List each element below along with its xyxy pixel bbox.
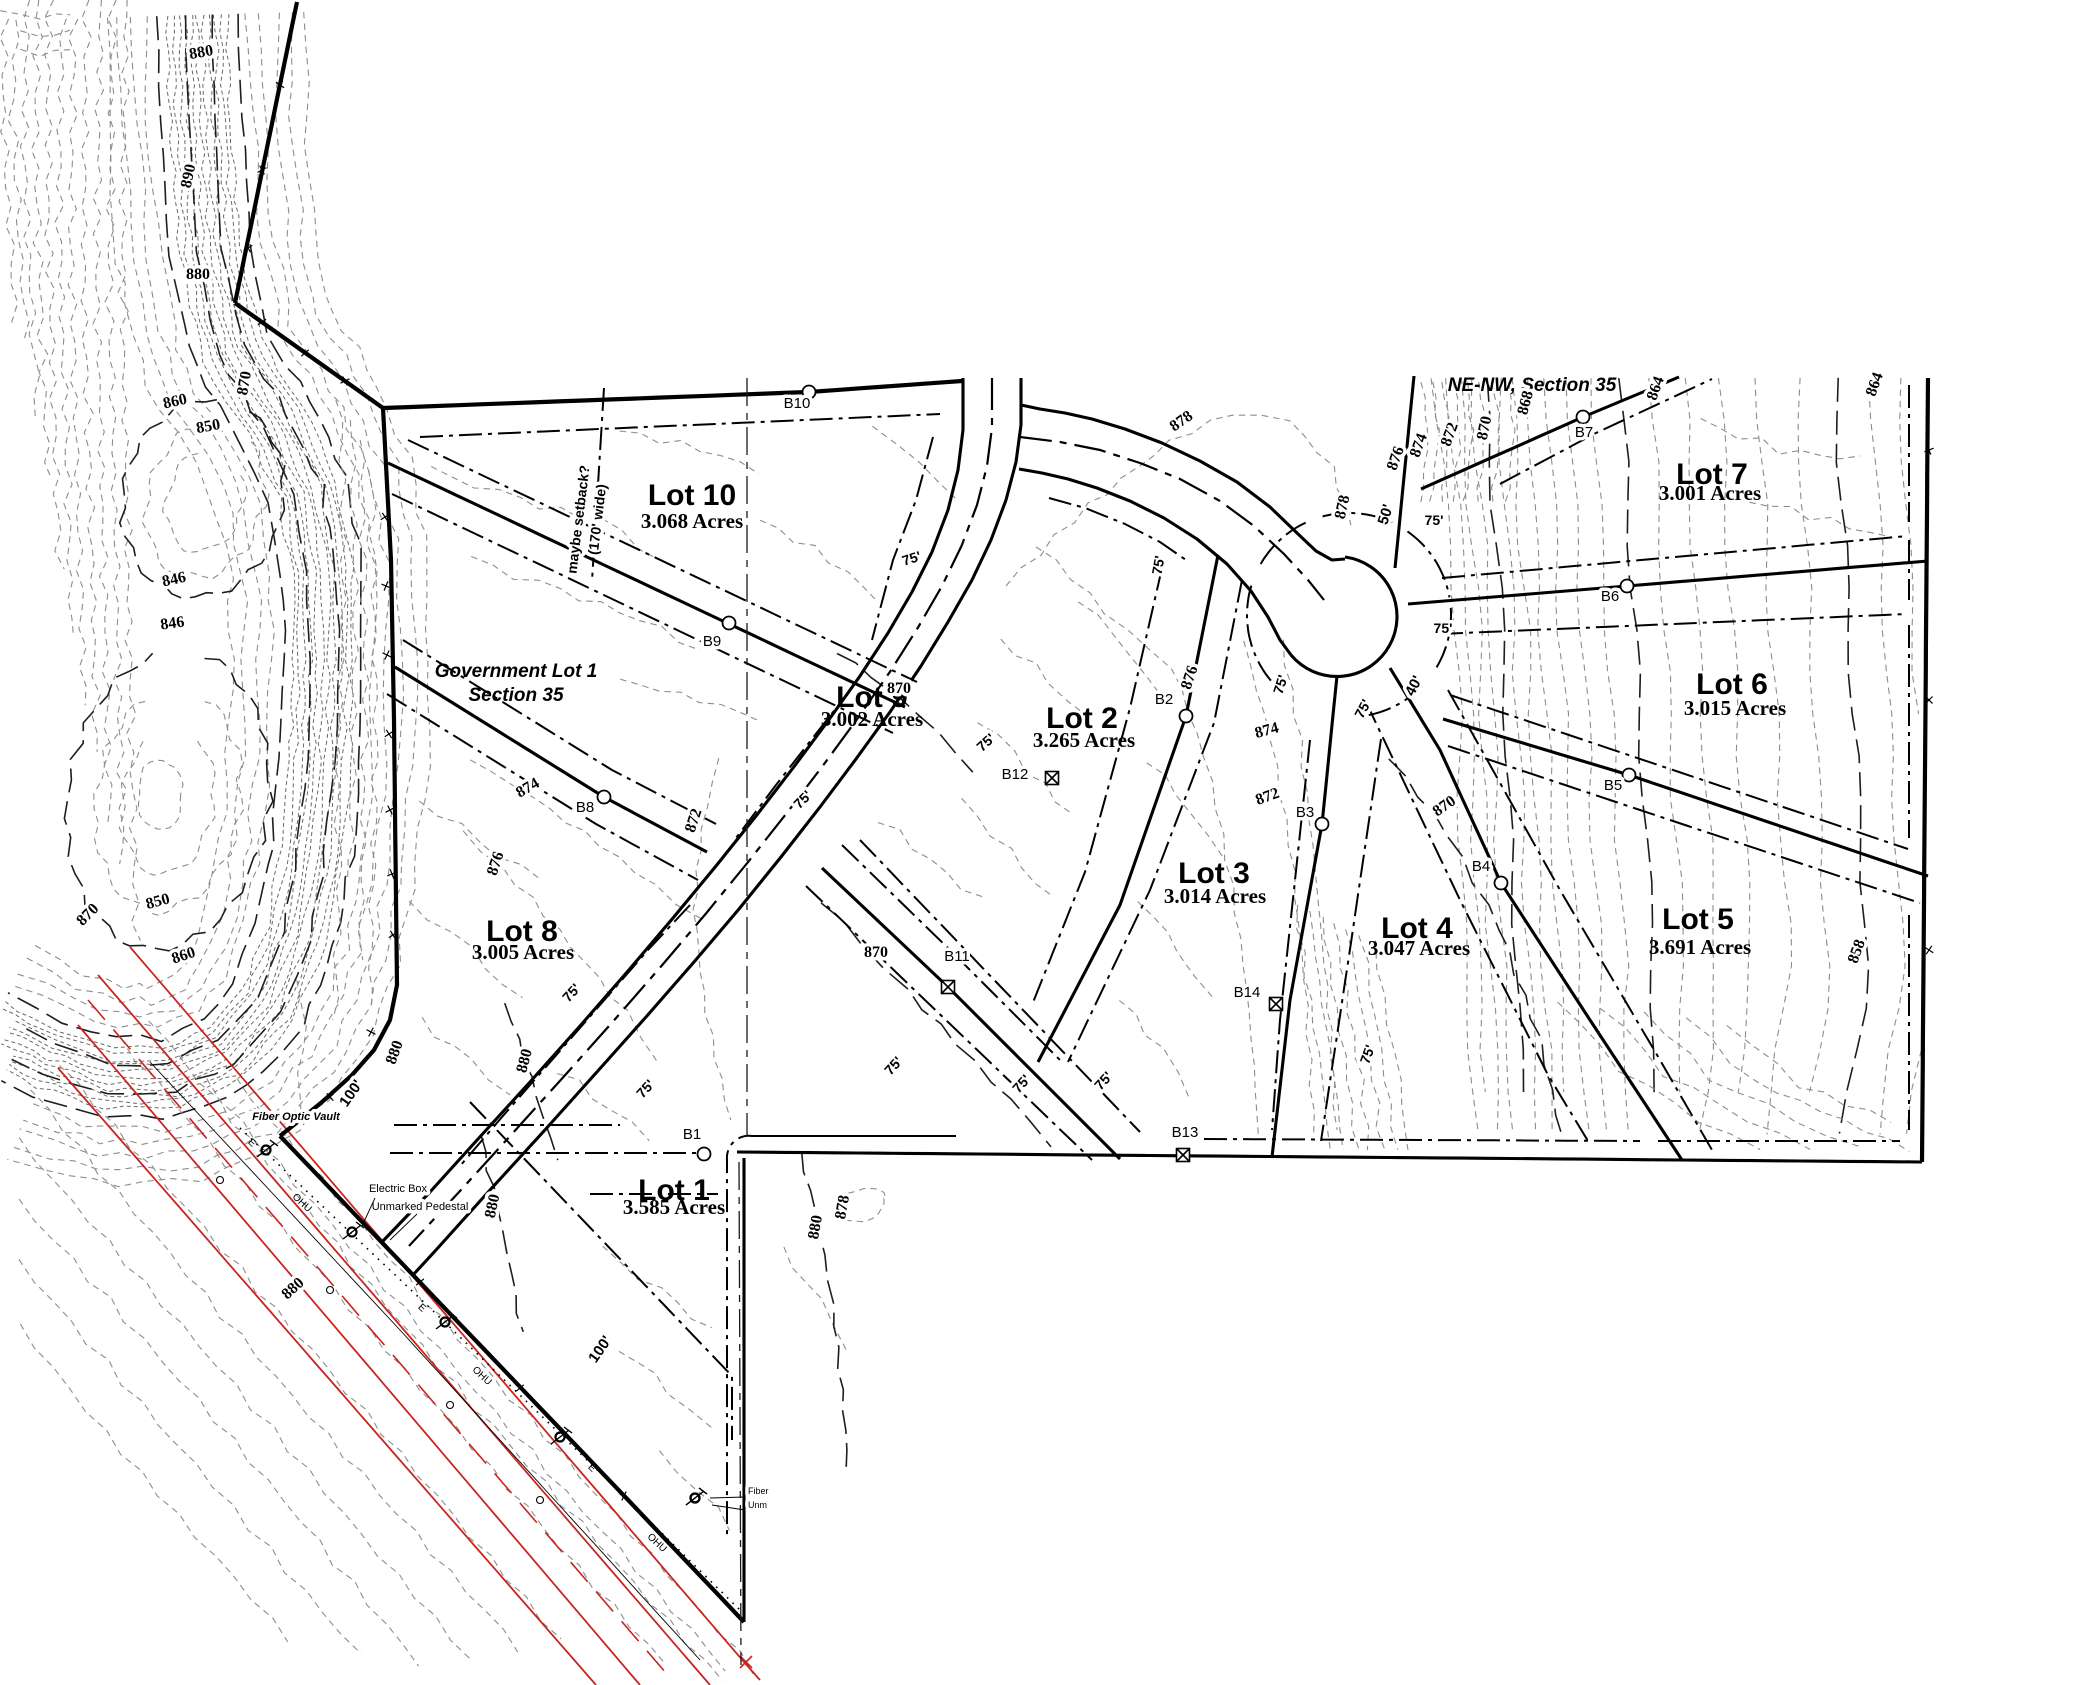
svg-text:B4: B4	[1472, 858, 1490, 875]
svg-text:B14: B14	[1234, 984, 1261, 1001]
svg-text:3.015 Acres: 3.015 Acres	[1684, 696, 1786, 720]
svg-text:B11: B11	[944, 948, 970, 965]
svg-text:870: 870	[887, 680, 911, 697]
svg-text:846: 846	[159, 613, 185, 633]
svg-text:Lot 5: Lot 5	[1662, 903, 1734, 936]
svg-text:3.005 Acres: 3.005 Acres	[472, 940, 574, 964]
svg-text:B7: B7	[1575, 424, 1593, 441]
svg-text:B2: B2	[1155, 691, 1173, 708]
svg-text:3.002 Acres: 3.002 Acres	[821, 707, 923, 731]
svg-text:B3: B3	[1296, 804, 1314, 821]
svg-text:3.047 Acres: 3.047 Acres	[1368, 936, 1470, 960]
svg-text:B1: B1	[683, 1126, 701, 1143]
svg-text:B13: B13	[1172, 1124, 1199, 1141]
svg-text:870: 870	[864, 944, 888, 961]
svg-text:75': 75'	[1425, 512, 1444, 528]
svg-text:Unm: Unm	[748, 1500, 767, 1510]
svg-text:Fiber: Fiber	[748, 1486, 769, 1496]
svg-text:B12: B12	[1002, 766, 1029, 783]
svg-text:Fiber Optic Vault: Fiber Optic Vault	[252, 1111, 341, 1123]
svg-text:Unmarked Pedestal: Unmarked Pedestal	[372, 1201, 469, 1213]
svg-text:Electric Box: Electric Box	[369, 1183, 428, 1195]
svg-text:75': 75'	[1149, 554, 1168, 575]
svg-text:880: 880	[186, 266, 210, 283]
svg-text:B8: B8	[576, 799, 594, 816]
svg-text:3.014 Acres: 3.014 Acres	[1164, 884, 1266, 908]
svg-text:3.265 Acres: 3.265 Acres	[1033, 728, 1135, 752]
svg-text:Government Lot 1: Government Lot 1	[435, 661, 598, 682]
svg-text:3.585 Acres: 3.585 Acres	[623, 1195, 725, 1219]
svg-text:3.691 Acres: 3.691 Acres	[1649, 935, 1751, 959]
svg-text:Lot 10: Lot 10	[648, 479, 736, 512]
svg-text:B10: B10	[784, 395, 811, 412]
svg-text:75': 75'	[1434, 620, 1453, 636]
svg-text:B6: B6	[1601, 588, 1619, 605]
svg-text:Section 35: Section 35	[468, 685, 563, 706]
svg-text:B5: B5	[1604, 777, 1622, 794]
svg-text:3.068 Acres: 3.068 Acres	[641, 509, 743, 533]
svg-text:B9: B9	[703, 633, 721, 650]
svg-text:3.001 Acres: 3.001 Acres	[1659, 481, 1761, 505]
